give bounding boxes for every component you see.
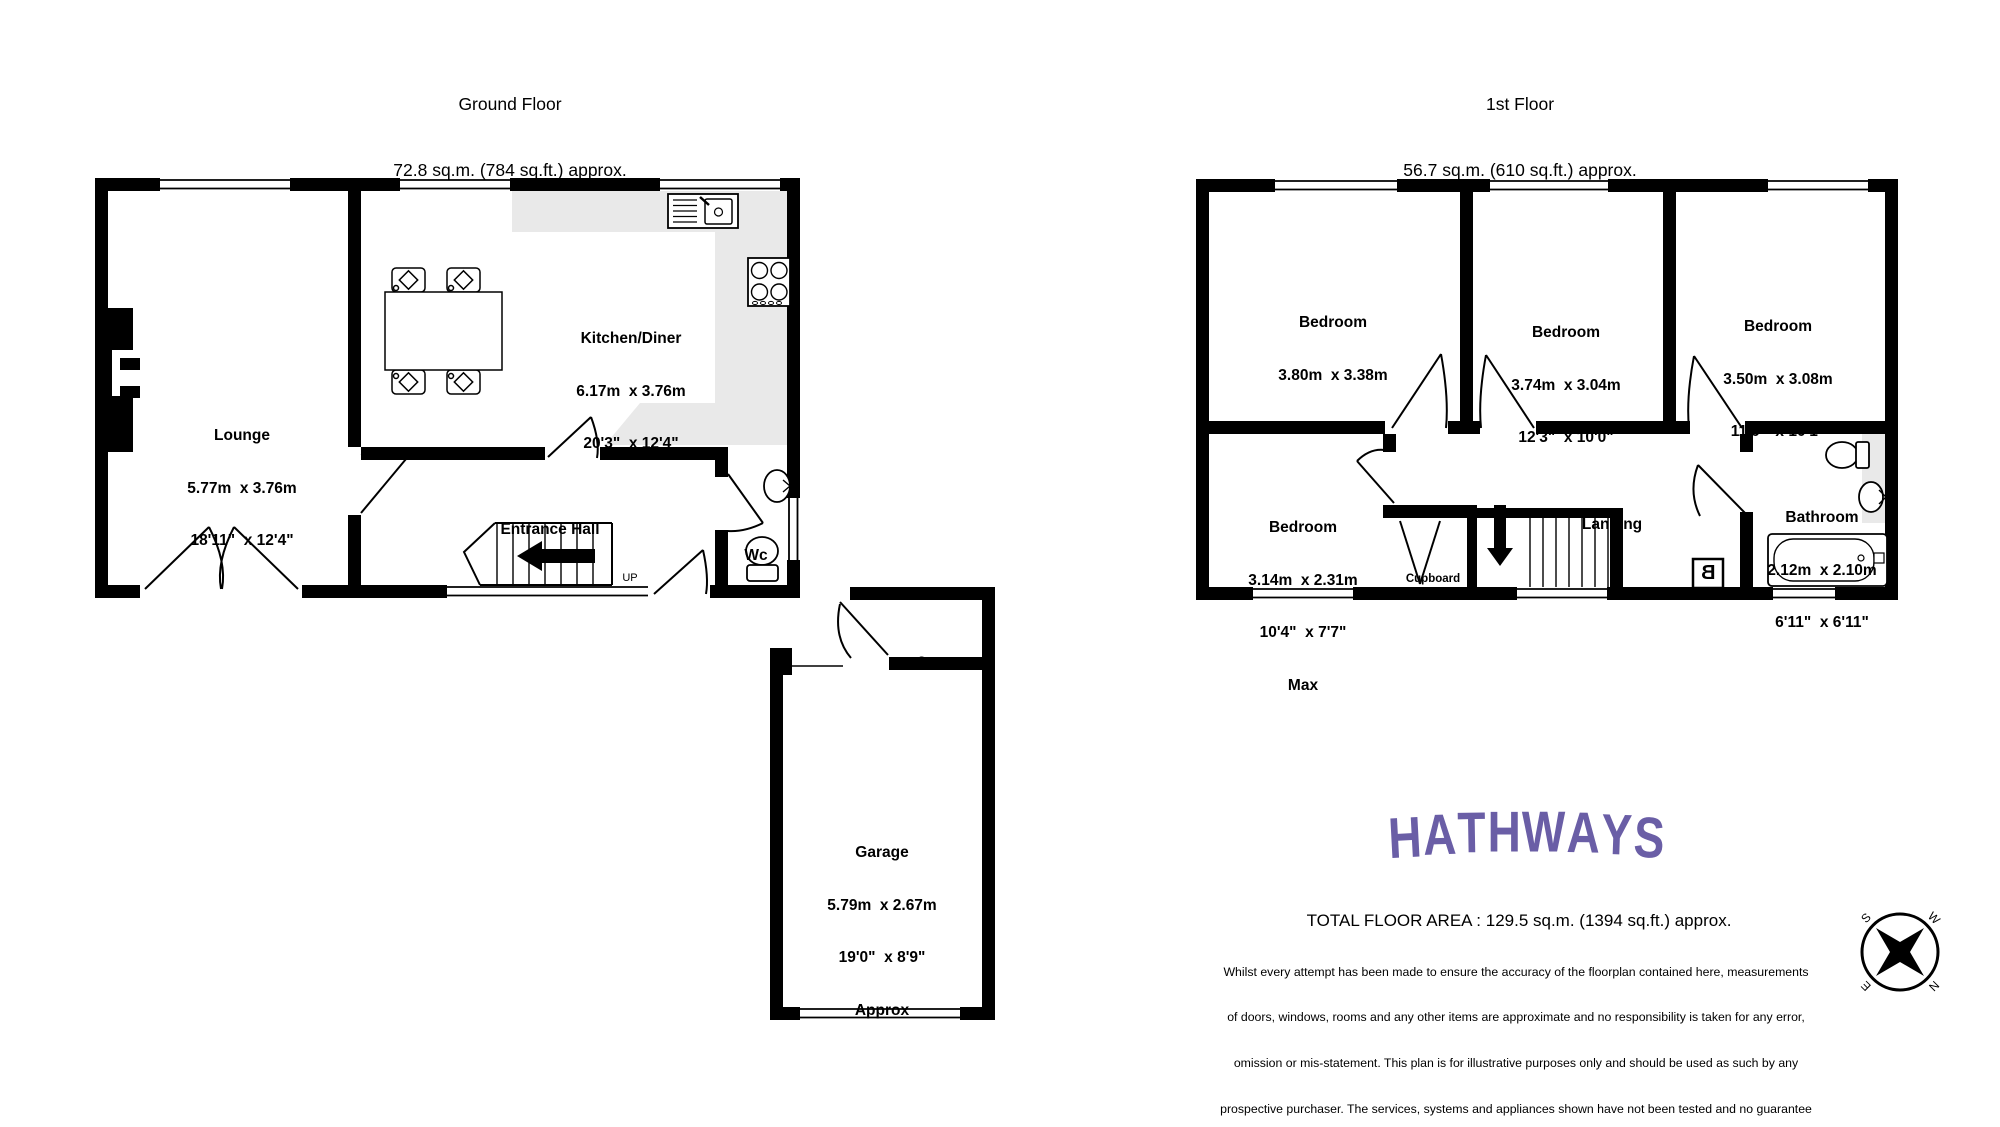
landing-label: Landing	[1582, 481, 1642, 569]
room-name: Wc	[744, 547, 767, 565]
room-name: Landing	[1582, 516, 1642, 534]
stairs-direction: UP	[622, 572, 637, 584]
garage-label: Garage 5.79m x 2.67m 19'0" x 8'9" Approx	[827, 809, 936, 1054]
entrance-hall-label: Entrance Hall	[500, 486, 599, 574]
boiler-letter: B	[1701, 562, 1715, 585]
compass-icon	[1862, 914, 1938, 990]
first-floor-area: 56.7 sq.m. (610 sq.ft.) approx.	[1403, 159, 1636, 181]
bedroom4-label: Bedroom 3.14m x 2.31m 10'4" x 7'7" Max	[1248, 484, 1357, 729]
storage-label: Storage	[918, 629, 963, 694]
cupboard-label: Cupboard	[1406, 547, 1460, 612]
room-name: Kitchen/Diner	[576, 330, 685, 348]
room-name: Bedroom	[1248, 519, 1357, 537]
ground-floor-area: 72.8 sq.m. (784 sq.ft.) approx.	[393, 159, 626, 181]
room-note: Max	[1248, 677, 1357, 695]
room-name: Bedroom	[1278, 314, 1387, 332]
room-dims-metric: 3.74m x 3.04m	[1511, 377, 1620, 395]
room-dims-metric: 5.79m x 2.67m	[827, 897, 936, 915]
stairs-direction: DOWN	[1482, 509, 1515, 521]
room-name: Cupboard	[1406, 573, 1460, 586]
room-name: Bedroom	[1511, 324, 1620, 342]
up-label: UP	[622, 548, 637, 608]
bedroom2-label: Bedroom 3.74m x 3.04m 12'3" x 10'0"	[1511, 289, 1620, 482]
fireplace	[112, 350, 140, 398]
ground-floor-title: Ground Floor 72.8 sq.m. (784 sq.ft.) app…	[393, 49, 626, 225]
hathways-logo: HATHWAYS	[1390, 812, 1664, 866]
room-dims-imperial: 18'11" x 12'4"	[187, 532, 296, 550]
room-dims-metric: 5.77m x 3.76m	[187, 480, 296, 498]
storage-door	[792, 602, 888, 666]
room-dims-metric: 6.17m x 3.76m	[576, 383, 685, 401]
room-name: Entrance Hall	[500, 521, 599, 539]
kitchen-label: Kitchen/Diner 6.17m x 3.76m 20'3" x 12'4…	[576, 295, 685, 488]
sink-icon	[668, 194, 738, 228]
room-note: Approx	[827, 1002, 936, 1020]
room-name: Garage	[827, 844, 936, 862]
disclaimer-line: omission or mis-statement. This plan is …	[1220, 1056, 1812, 1071]
bedroom1-label: Bedroom 3.80m x 3.38m 12'6" x 11'1"	[1278, 279, 1387, 472]
bathroom-label: Bathroom 2.12m x 2.10m 6'11" x 6'11"	[1767, 474, 1876, 667]
floorplan-page: Ground Floor 72.8 sq.m. (784 sq.ft.) app…	[0, 0, 2000, 1127]
dining-table	[385, 268, 502, 394]
wc-label: Wc	[744, 512, 767, 600]
disclaimer-line: Whilst every attempt has been made to en…	[1220, 965, 1812, 980]
room-dims-imperial: 12'6" x 11'1"	[1278, 419, 1387, 437]
boiler-label: B	[1693, 559, 1723, 588]
disclaimer: Whilst every attempt has been made to en…	[1220, 934, 1812, 1127]
room-name: Bedroom	[1723, 318, 1832, 336]
room-name: Bathroom	[1767, 509, 1876, 527]
room-dims-imperial: 11'6" x 10'1"	[1723, 423, 1832, 441]
wc-basin-icon	[764, 470, 790, 502]
bedroom3-label: Bedroom 3.50m x 3.08m 11'6" x 10'1"	[1723, 283, 1832, 476]
room-dims-metric: 3.50m x 3.08m	[1723, 371, 1832, 389]
room-dims-imperial: 20'3" x 12'4"	[576, 435, 685, 453]
first-floor-name: 1st Floor	[1403, 93, 1636, 115]
first-floor-title: 1st Floor 56.7 sq.m. (610 sq.ft.) approx…	[1403, 49, 1636, 225]
disclaimer-line: prospective purchaser. The services, sys…	[1220, 1102, 1812, 1117]
ground-floor-name: Ground Floor	[393, 93, 626, 115]
room-dims-imperial: 12'3" x 10'0"	[1511, 429, 1620, 447]
room-name: Lounge	[187, 427, 296, 445]
lounge-label: Lounge 5.77m x 3.76m 18'11" x 12'4"	[187, 392, 296, 585]
down-label: DOWN	[1482, 485, 1515, 545]
total-floor-area: TOTAL FLOOR AREA : 129.5 sq.m. (1394 sq.…	[1307, 911, 1732, 931]
room-dims-imperial: 19'0" x 8'9"	[827, 949, 936, 967]
room-dims-metric: 3.14m x 2.31m	[1248, 572, 1357, 590]
room-dims-metric: 3.80m x 3.38m	[1278, 367, 1387, 385]
room-dims-metric: 2.12m x 2.10m	[1767, 562, 1876, 580]
hob-icon	[748, 258, 790, 306]
room-name: Storage	[918, 655, 963, 668]
room-dims-imperial: 6'11" x 6'11"	[1767, 614, 1876, 632]
room-dims-imperial: 10'4" x 7'7"	[1248, 624, 1357, 642]
disclaimer-line: of doors, windows, rooms and any other i…	[1220, 1010, 1812, 1025]
